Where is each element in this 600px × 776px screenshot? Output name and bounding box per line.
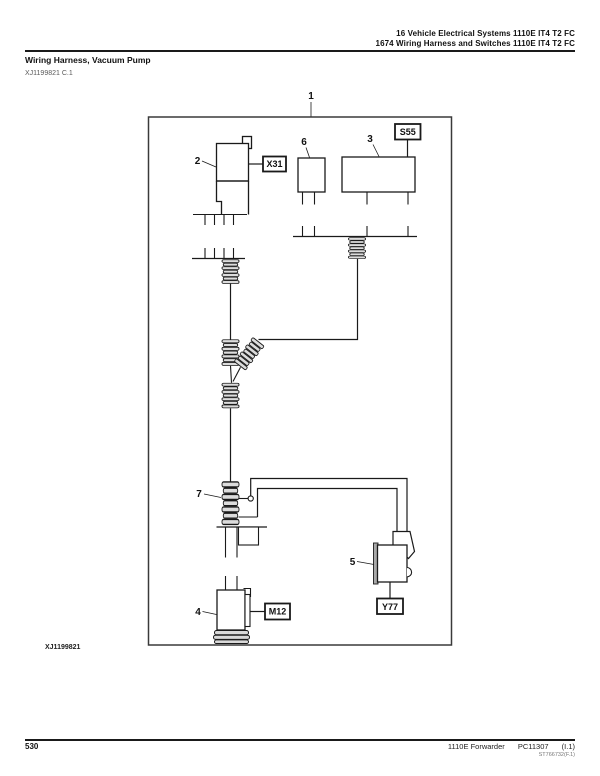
figure-caption: XJ1199821 [45, 644, 80, 651]
component-2-pins [193, 215, 247, 226]
footer-doc-code: ST766732(F.1) [539, 752, 575, 758]
connector-tag-y77: Y77 [377, 599, 403, 615]
component-4-body [217, 590, 245, 630]
connector-tag-s55: S55 [395, 124, 421, 157]
component-6-pins [303, 192, 315, 205]
callout-5: 5 [350, 557, 374, 568]
callout-4: 4 [195, 607, 216, 618]
callout-7: 7 [196, 489, 221, 500]
right-bus [293, 226, 417, 237]
component-5-bump [407, 568, 412, 577]
component-6-body [298, 158, 325, 192]
manual-page: 16 Vehicle Electrical Systems 1110E IT4 … [0, 0, 600, 776]
callout-4-label: 4 [195, 607, 201, 618]
loom-junction-lower [222, 383, 239, 408]
connector-tag-s55-label: S55 [400, 127, 416, 137]
loom-right [349, 238, 366, 259]
connector-tag-x31-label: X31 [266, 159, 282, 169]
callout-6-label: 6 [301, 137, 307, 148]
footer-page-number: 530 [25, 742, 38, 751]
component-2-body [217, 144, 249, 182]
callout-2: 2 [195, 156, 216, 167]
callout-3-label: 3 [367, 134, 373, 145]
callout-1-label: 1 [308, 91, 314, 102]
component-2 [217, 137, 252, 215]
harness-clamp [217, 527, 268, 558]
footer-revision: (I.1) [562, 742, 575, 751]
callout-2-label: 2 [195, 156, 201, 167]
callout-6: 6 [301, 137, 309, 158]
callout-5-label: 5 [350, 557, 356, 568]
component-4-ribs [214, 631, 250, 644]
connector-tag-x31: X31 [249, 157, 287, 172]
callout-7-label: 7 [196, 489, 202, 500]
branch-wires [239, 479, 408, 532]
callout-1: 1 [308, 91, 314, 117]
harness-wires [231, 259, 358, 482]
component-4-rail [245, 595, 250, 627]
footer-model: 1110E Forwarder [448, 742, 505, 751]
wiring-diagram: 1 2 X31 [0, 0, 600, 776]
loom-left-upper [222, 260, 239, 284]
callout-3: 3 [367, 134, 379, 157]
loom-7 [222, 482, 239, 524]
left-bus [192, 248, 245, 259]
connector-tag-y77-label: Y77 [382, 602, 398, 612]
footer-rule [25, 739, 575, 741]
component-2-base [217, 181, 249, 215]
connector-tag-m12: M12 [250, 604, 290, 620]
component-4 [214, 576, 251, 644]
component-3-pins [367, 192, 408, 205]
component-5 [374, 532, 415, 599]
footer-manual-code: PC11307 [518, 742, 549, 751]
branch-ring-terminal [248, 496, 253, 501]
connector-tag-m12-label: M12 [269, 607, 287, 617]
footer-right: 1110E Forwarder PC11307 (I.1) [448, 742, 575, 751]
component-3-body [342, 157, 415, 192]
component-5-body [378, 545, 408, 582]
